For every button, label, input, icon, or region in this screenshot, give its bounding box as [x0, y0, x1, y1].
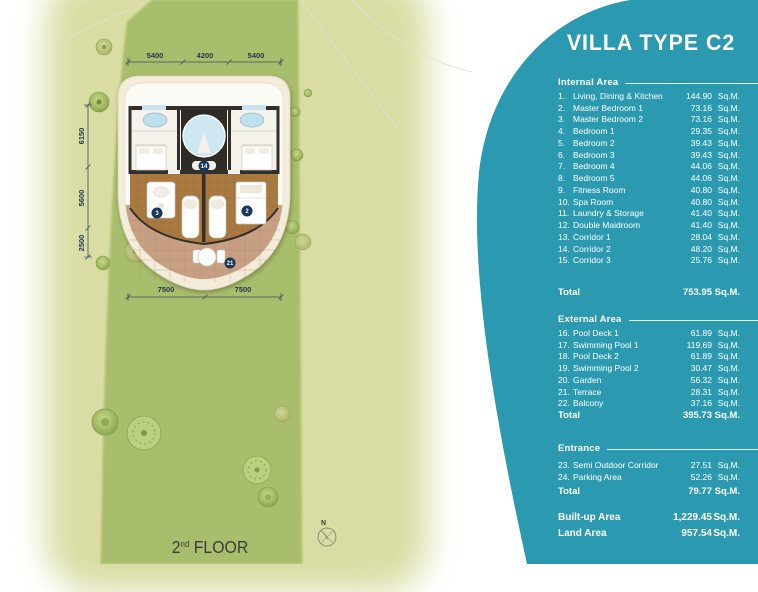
- area-row: 2.Master Bedroom 173.16Sq.M.: [558, 102, 740, 114]
- row-label: Fitness Room: [573, 185, 672, 195]
- entrance-total: Total 79.77 Sq.M.: [558, 486, 740, 497]
- row-value: 30.47: [672, 363, 712, 373]
- row-value: 40.80: [672, 185, 712, 195]
- row-label: Parking Area: [573, 472, 672, 482]
- row-unit: Sq.M.: [712, 244, 740, 254]
- entrance-header: Entrance: [558, 443, 758, 454]
- row-value: 29.35: [672, 126, 712, 136]
- area-row: 9.Fitness Room40.80Sq.M.: [558, 184, 740, 196]
- row-unit: Sq.M.: [712, 103, 740, 113]
- row-unit: Sq.M.: [712, 255, 740, 265]
- row-unit: Sq.M.: [712, 150, 740, 160]
- row-unit: Sq.M.: [712, 232, 740, 242]
- summary-label: Built-up Area: [558, 512, 673, 523]
- row-value: 44.06: [672, 173, 712, 183]
- area-row: 7.Bedroom 444.06Sq.M.: [558, 161, 740, 173]
- land-area-row: Land Area 957.54 Sq.M.: [558, 528, 740, 539]
- summary-value: 957.54: [681, 528, 712, 539]
- row-label: Terrace: [573, 387, 672, 397]
- row-value: 61.89: [672, 351, 712, 361]
- area-row: 15.Corridor 325.76Sq.M.: [558, 255, 740, 267]
- row-label: Double Maidroom: [573, 220, 672, 230]
- row-value: 40.80: [672, 197, 712, 207]
- row-value: 25.76: [672, 255, 712, 265]
- villa-title: VILLA TYPE C2: [555, 30, 747, 56]
- row-label: Spa Room: [573, 197, 672, 207]
- row-label: Garden: [573, 375, 672, 385]
- row-value: 41.40: [672, 220, 712, 230]
- row-unit: Sq.M.: [712, 340, 740, 350]
- area-row: 18.Pool Deck 261.89Sq.M.: [558, 351, 740, 363]
- row-number: 22.: [558, 398, 573, 408]
- area-row: 16.Pool Deck 161.89Sq.M.: [558, 327, 740, 339]
- summary-label: Land Area: [558, 528, 681, 539]
- area-row: 20.Garden56.32Sq.M.: [558, 374, 740, 386]
- row-number: 19.: [558, 363, 573, 373]
- total-value: 753.95: [683, 287, 712, 298]
- row-label: Laundry & Storage: [573, 208, 672, 218]
- row-value: 73.16: [672, 114, 712, 124]
- section-title: External Area: [558, 314, 622, 325]
- row-number: 10.: [558, 197, 573, 207]
- section-title: Entrance: [558, 443, 600, 454]
- row-label: Swimming Pool 1: [573, 340, 672, 350]
- area-row: 13.Corridor 128.04Sq.M.: [558, 231, 740, 243]
- row-value: 39.43: [672, 138, 712, 148]
- row-number: 7.: [558, 161, 573, 171]
- row-unit: Sq.M.: [712, 173, 740, 183]
- area-row: 22.Balcony37.16Sq.M.: [558, 398, 740, 410]
- total-unit: Sq.M.: [712, 287, 740, 298]
- row-value: 119.69: [672, 340, 712, 350]
- total-label: Total: [558, 486, 688, 497]
- row-label: Bedroom 3: [573, 150, 672, 160]
- section-title: Internal Area: [558, 77, 618, 88]
- row-unit: Sq.M.: [712, 460, 740, 470]
- row-unit: Sq.M.: [712, 472, 740, 482]
- row-label: Master Bedroom 1: [573, 103, 672, 113]
- row-number: 3.: [558, 114, 573, 124]
- row-number: 2.: [558, 103, 573, 113]
- entrance-list: 23.Semi Outdoor Corridor27.51Sq.M. 24.Pa…: [558, 459, 740, 483]
- row-label: Bedroom 1: [573, 126, 672, 136]
- row-value: 41.40: [672, 208, 712, 218]
- row-number: 16.: [558, 328, 573, 338]
- total-unit: Sq.M.: [712, 486, 740, 497]
- summary-unit: Sq.M.: [712, 528, 740, 539]
- row-number: 13.: [558, 232, 573, 242]
- row-label: Master Bedroom 2: [573, 114, 672, 124]
- row-value: 39.43: [672, 150, 712, 160]
- header-rule: [625, 83, 758, 84]
- row-label: Corridor 3: [573, 255, 672, 265]
- row-label: Swimming Pool 2: [573, 363, 672, 373]
- internal-area-header: Internal Area: [558, 77, 758, 88]
- area-row: 8.Bedroom 544.06Sq.M.: [558, 172, 740, 184]
- row-number: 1.: [558, 91, 573, 101]
- row-label: Bedroom 5: [573, 173, 672, 183]
- area-row: 4.Bedroom 129.35Sq.M.: [558, 125, 740, 137]
- row-unit: Sq.M.: [712, 208, 740, 218]
- row-label: Corridor 1: [573, 232, 672, 242]
- row-number: 18.: [558, 351, 573, 361]
- row-value: 27.51: [672, 460, 712, 470]
- row-number: 6.: [558, 150, 573, 160]
- row-label: Living, Dining & Kitchen: [573, 91, 672, 101]
- area-row: 1.Living, Dining & Kitchen144.90Sq.M.: [558, 90, 740, 102]
- row-value: 52.26: [672, 472, 712, 482]
- row-unit: Sq.M.: [712, 161, 740, 171]
- row-label: Balcony: [573, 398, 672, 408]
- total-unit: Sq.M.: [712, 410, 740, 421]
- area-row: 12.Double Maidroom41.40Sq.M.: [558, 219, 740, 231]
- row-number: 5.: [558, 138, 573, 148]
- row-number: 11.: [558, 208, 573, 218]
- row-label: Corridor 2: [573, 244, 672, 254]
- row-number: 17.: [558, 340, 573, 350]
- row-label: Pool Deck 1: [573, 328, 672, 338]
- row-label: Bedroom 4: [573, 161, 672, 171]
- row-unit: Sq.M.: [712, 387, 740, 397]
- area-row: 24.Parking Area52.26Sq.M.: [558, 471, 740, 483]
- total-label: Total: [558, 287, 683, 298]
- row-unit: Sq.M.: [712, 138, 740, 148]
- row-value: 144.90: [672, 91, 712, 101]
- row-number: 8.: [558, 173, 573, 183]
- row-unit: Sq.M.: [712, 185, 740, 195]
- row-number: 4.: [558, 126, 573, 136]
- row-unit: Sq.M.: [712, 91, 740, 101]
- row-value: 56.32: [672, 375, 712, 385]
- row-number: 14.: [558, 244, 573, 254]
- area-row: 10.Spa Room40.80Sq.M.: [558, 196, 740, 208]
- header-rule: [607, 449, 758, 450]
- external-area-header: External Area: [558, 314, 758, 325]
- row-value: 61.89: [672, 328, 712, 338]
- internal-total: Total 753.95 Sq.M.: [558, 287, 740, 298]
- row-value: 37.16: [672, 398, 712, 408]
- row-unit: Sq.M.: [712, 126, 740, 136]
- row-value: 28.31: [672, 387, 712, 397]
- area-row: 14.Corridor 248.20Sq.M.: [558, 243, 740, 255]
- row-unit: Sq.M.: [712, 220, 740, 230]
- area-row: 19.Swimming Pool 230.47Sq.M.: [558, 362, 740, 374]
- row-number: 9.: [558, 185, 573, 195]
- external-total: Total 395.73 Sq.M.: [558, 410, 740, 421]
- row-unit: Sq.M.: [712, 375, 740, 385]
- summary-value: 1,229.45: [673, 512, 712, 523]
- row-number: 12.: [558, 220, 573, 230]
- external-area-list: 16.Pool Deck 161.89Sq.M. 17.Swimming Poo…: [558, 327, 740, 409]
- row-number: 20.: [558, 375, 573, 385]
- total-value: 395.73: [683, 410, 712, 421]
- header-rule: [629, 320, 758, 321]
- row-unit: Sq.M.: [712, 398, 740, 408]
- row-value: 73.16: [672, 103, 712, 113]
- info-panel: VILLA TYPE C2 Internal Area 1.Living, Di…: [552, 0, 758, 564]
- total-label: Total: [558, 410, 683, 421]
- row-value: 48.20: [672, 244, 712, 254]
- row-value: 44.06: [672, 161, 712, 171]
- area-row: 11.Laundry & Storage41.40Sq.M.: [558, 208, 740, 220]
- row-label: Semi Outdoor Corridor: [573, 460, 672, 470]
- total-value: 79.77: [688, 486, 712, 497]
- area-row: 3.Master Bedroom 273.16Sq.M.: [558, 114, 740, 126]
- area-row: 6.Bedroom 339.43Sq.M.: [558, 149, 740, 161]
- row-unit: Sq.M.: [712, 351, 740, 361]
- area-row: 23.Semi Outdoor Corridor27.51Sq.M.: [558, 459, 740, 471]
- row-unit: Sq.M.: [712, 363, 740, 373]
- row-number: 23.: [558, 460, 573, 470]
- row-number: 15.: [558, 255, 573, 265]
- internal-area-list: 1.Living, Dining & Kitchen144.90Sq.M. 2.…: [558, 90, 740, 266]
- row-label: Pool Deck 2: [573, 351, 672, 361]
- area-row: 21.Terrace28.31Sq.M.: [558, 386, 740, 398]
- row-number: 24.: [558, 472, 573, 482]
- row-label: Bedroom 2: [573, 138, 672, 148]
- area-row: 17.Swimming Pool 1119.69Sq.M.: [558, 339, 740, 351]
- area-row: 5.Bedroom 239.43Sq.M.: [558, 137, 740, 149]
- row-unit: Sq.M.: [712, 328, 740, 338]
- built-up-area-row: Built-up Area 1,229.45 Sq.M.: [558, 512, 740, 523]
- row-number: 21.: [558, 387, 573, 397]
- row-value: 28.04: [672, 232, 712, 242]
- row-unit: Sq.M.: [712, 197, 740, 207]
- summary-unit: Sq.M.: [712, 512, 740, 523]
- row-unit: Sq.M.: [712, 114, 740, 124]
